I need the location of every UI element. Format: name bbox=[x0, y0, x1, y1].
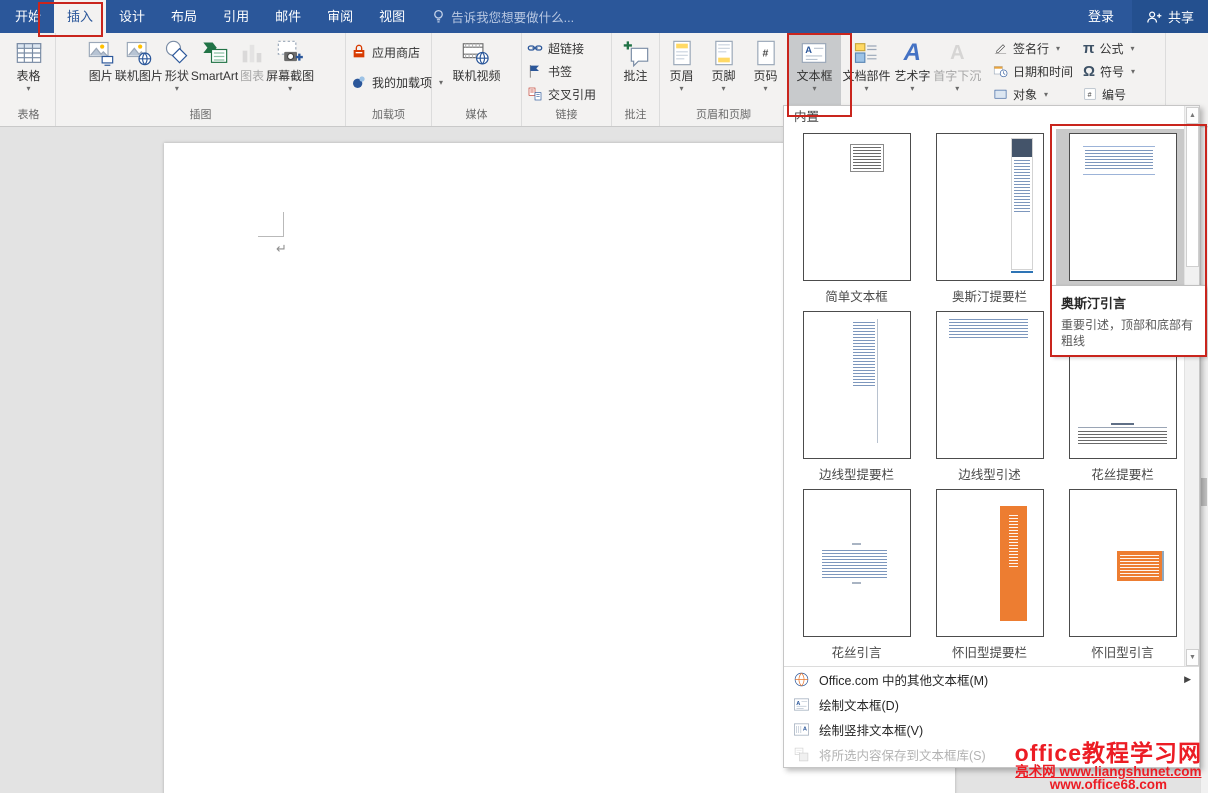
submenu-arrow-icon: ▶ bbox=[1184, 674, 1191, 685]
comment-button[interactable]: 批注 bbox=[622, 33, 650, 105]
screenshot-icon bbox=[276, 37, 304, 69]
hyperlink-button[interactable]: 超链接 bbox=[522, 37, 589, 59]
chevron-down-icon: ▾ bbox=[26, 84, 30, 93]
ribbon-group-addins: 应用商店 我的加载项 ▾ 加载项 bbox=[346, 33, 432, 126]
smartart-icon bbox=[201, 37, 229, 69]
ribbon-tab-bar: 开始 插入 设计 布局 引用 邮件 审阅 视图 告诉我您想要做什么... 登录 … bbox=[0, 0, 1208, 33]
thumbnail-simple-text-box bbox=[803, 133, 911, 281]
gallery-section-header: 内置 bbox=[784, 106, 1199, 129]
table-button[interactable]: 表格 ▾ bbox=[15, 33, 43, 105]
ribbon-group-media: 联机视频 媒体 bbox=[432, 33, 522, 126]
online-pictures-button[interactable]: 联机图片 bbox=[115, 33, 163, 105]
bookmark-button[interactable]: 书签 bbox=[522, 60, 577, 82]
tab-layout[interactable]: 布局 bbox=[158, 0, 210, 33]
date-time-button[interactable]: 日期和时间 bbox=[988, 60, 1078, 82]
cross-reference-button[interactable]: 交叉引用 bbox=[522, 83, 601, 105]
gallery-item-filament-quote[interactable]: 花丝引言 bbox=[790, 485, 923, 663]
table-icon bbox=[15, 37, 43, 69]
bar-chart-icon bbox=[238, 37, 266, 69]
tooltip-description: 重要引述，顶部和底部有粗线 bbox=[1061, 317, 1197, 349]
ribbon-group-header-footer: 页眉 ▾ 页脚 ▾ # 页码 ▾ 页眉和页脚 bbox=[660, 33, 788, 126]
chevron-down-icon: ▾ bbox=[910, 84, 914, 93]
chevron-down-icon: ▾ bbox=[1056, 44, 1060, 53]
gallery-item-sideline-quote[interactable]: 边线型引述 bbox=[923, 307, 1056, 485]
quick-parts-icon bbox=[852, 37, 880, 69]
scroll-down-icon[interactable]: ▼ bbox=[1186, 649, 1199, 666]
chevron-down-icon: ▾ bbox=[1044, 90, 1048, 99]
equation-button[interactable]: π 公式 ▾ bbox=[1078, 37, 1140, 59]
symbol-button[interactable]: Ω 符号 ▾ bbox=[1078, 60, 1140, 82]
drop-cap-icon: A bbox=[950, 42, 964, 64]
document-scrollbar-thumb[interactable] bbox=[1201, 478, 1207, 506]
page-number-icon: # bbox=[754, 37, 778, 69]
person-plus-icon bbox=[1146, 9, 1162, 25]
gallery-item-retrospect-quote[interactable]: 怀旧型引言 bbox=[1056, 485, 1189, 663]
word-window: 开始 插入 设计 布局 引用 邮件 审阅 视图 告诉我您想要做什么... 登录 … bbox=[0, 0, 1208, 793]
header-icon bbox=[670, 37, 694, 69]
tab-view[interactable]: 视图 bbox=[366, 0, 418, 33]
chevron-down-icon: ▾ bbox=[175, 84, 179, 93]
group-label-header-footer: 页眉和页脚 bbox=[660, 107, 787, 125]
text-box-button[interactable]: A 文本框 ▾ bbox=[788, 33, 841, 105]
chevron-down-icon: ▾ bbox=[812, 84, 816, 93]
watermark: office教程学习网 亮术网 www.liangshunet.com www.… bbox=[1015, 742, 1202, 792]
chevron-down-icon: ▾ bbox=[721, 84, 725, 93]
menu-item-more-text-boxes[interactable]: Office.com 中的其他文本框(M) ▶ bbox=[784, 667, 1199, 692]
group-label-media: 媒体 bbox=[432, 107, 521, 125]
office-com-globe-icon bbox=[792, 671, 810, 689]
margin-crop-mark bbox=[258, 236, 284, 237]
group-label-addins: 加载项 bbox=[346, 107, 431, 125]
chevron-down-icon: ▾ bbox=[679, 84, 683, 93]
signature-line-button[interactable]: 签名行 ▾ bbox=[988, 37, 1065, 59]
object-icon bbox=[993, 87, 1008, 102]
thumbnail-austin-sidebar bbox=[936, 133, 1044, 281]
group-label-illustrations: 插图 bbox=[56, 107, 345, 125]
ribbon-group-table: 表格 ▾ 表格 bbox=[2, 33, 56, 126]
tab-mailings[interactable]: 邮件 bbox=[262, 0, 314, 33]
omega-icon: Ω bbox=[1083, 63, 1095, 80]
watermark-url-2: www.office68.com bbox=[1015, 778, 1202, 792]
drop-cap-button: A 首字下沉 ▾ bbox=[933, 33, 982, 105]
shapes-icon bbox=[163, 37, 191, 69]
comment-icon bbox=[622, 37, 650, 69]
gallery-item-retrospect-sidebar[interactable]: 怀旧型提要栏 bbox=[923, 485, 1056, 663]
svg-text:#: # bbox=[762, 48, 768, 60]
pi-icon: π bbox=[1083, 40, 1094, 57]
screenshot-button[interactable]: 屏幕截图 ▾ bbox=[266, 33, 314, 105]
group-label-links: 链接 bbox=[522, 107, 611, 125]
number-box-icon: # bbox=[1083, 87, 1097, 101]
store-icon bbox=[351, 44, 367, 60]
smartart-button[interactable]: SmartArt bbox=[191, 33, 238, 105]
menu-item-draw-vertical-text-box[interactable]: A 绘制竖排文本框(V) bbox=[784, 717, 1199, 742]
tab-home[interactable]: 开始 bbox=[2, 0, 54, 33]
footer-button[interactable]: 页脚 ▾ bbox=[703, 33, 745, 105]
gallery-scrollbar[interactable]: ▲ ▼ bbox=[1184, 106, 1199, 667]
page-number-button[interactable]: # 页码 ▾ bbox=[745, 33, 787, 105]
tab-review[interactable]: 审阅 bbox=[314, 0, 366, 33]
scroll-up-icon[interactable]: ▲ bbox=[1186, 107, 1199, 124]
flag-icon bbox=[527, 63, 543, 79]
draw-vertical-text-box-icon: A bbox=[792, 721, 810, 739]
gallery-tooltip: 奥斯汀引言 重要引述，顶部和底部有粗线 bbox=[1051, 285, 1207, 356]
group-label-comments: 批注 bbox=[612, 107, 659, 125]
paragraph-mark: ↵ bbox=[276, 241, 287, 257]
lightbulb-icon bbox=[432, 9, 445, 24]
draw-text-box-icon: A bbox=[792, 696, 810, 714]
tab-design[interactable]: 设计 bbox=[106, 0, 158, 33]
numbering-button[interactable]: # 编号 bbox=[1078, 83, 1131, 105]
online-video-button[interactable]: 联机视频 bbox=[452, 33, 500, 105]
chart-button: 图表 bbox=[238, 33, 266, 105]
pictures-button[interactable]: 图片 bbox=[87, 33, 115, 105]
gallery-item-sideline-sidebar[interactable]: 边线型提要栏 bbox=[790, 307, 923, 485]
svg-text:A: A bbox=[806, 45, 813, 55]
chevron-down-icon: ▾ bbox=[763, 84, 767, 93]
object-button[interactable]: 对象 ▾ bbox=[988, 83, 1053, 105]
gallery-item-austin-quote[interactable]: 奥斯汀引言 bbox=[1056, 129, 1189, 307]
footer-icon bbox=[712, 37, 736, 69]
text-box-gallery-dropdown: 内置 简单文本框 奥斯汀提要栏 奥斯汀引言 bbox=[783, 105, 1200, 768]
ribbon-group-illustrations: 图片 联机图片 形状 ▾ bbox=[56, 33, 346, 126]
menu-item-draw-text-box[interactable]: A 绘制文本框(D) bbox=[784, 692, 1199, 717]
margin-crop-mark bbox=[283, 212, 284, 236]
thumbnail-austin-quote bbox=[1069, 133, 1177, 281]
text-box-gallery: 简单文本框 奥斯汀提要栏 奥斯汀引言 bbox=[790, 129, 1189, 663]
wordart-button[interactable]: A 艺术字 ▾ bbox=[892, 33, 933, 105]
quick-parts-button[interactable]: 文档部件 ▾ bbox=[841, 33, 892, 105]
addin-icon bbox=[351, 74, 367, 90]
document-scrollbar[interactable] bbox=[1200, 128, 1208, 793]
thumbnail-retrospect-sidebar bbox=[936, 489, 1044, 637]
tab-references[interactable]: 引用 bbox=[210, 0, 262, 33]
pen-icon bbox=[993, 41, 1008, 56]
chevron-down-icon: ▾ bbox=[1131, 44, 1135, 53]
cross-reference-icon bbox=[527, 86, 543, 102]
hyperlink-icon bbox=[527, 40, 543, 56]
group-label-table: 表格 bbox=[2, 107, 55, 125]
watermark-site-name: office教程学习网 bbox=[1015, 742, 1202, 765]
header-button[interactable]: 页眉 ▾ bbox=[661, 33, 703, 105]
svg-text:#: # bbox=[1088, 92, 1092, 99]
ribbon-group-comments: 批注 批注 bbox=[612, 33, 660, 126]
thumbnail-sideline-sidebar bbox=[803, 311, 911, 459]
gallery-item-simple-text-box[interactable]: 简单文本框 bbox=[790, 129, 923, 307]
tooltip-title: 奥斯汀引言 bbox=[1061, 293, 1197, 312]
gallery-scrollbar-thumb[interactable] bbox=[1186, 125, 1199, 267]
gallery-item-austin-sidebar[interactable]: 奥斯汀提要栏 bbox=[923, 129, 1056, 307]
chevron-down-icon: ▾ bbox=[955, 84, 959, 93]
online-picture-icon bbox=[125, 37, 153, 69]
ribbon-group-links: 超链接 书签 交叉引用 链接 bbox=[522, 33, 612, 126]
picture-icon bbox=[87, 37, 115, 69]
thumbnail-retrospect-quote bbox=[1069, 489, 1177, 637]
share-button[interactable]: 共享 bbox=[1132, 0, 1208, 33]
video-icon bbox=[461, 37, 491, 69]
tell-me-search[interactable]: 告诉我您想要做什么... bbox=[432, 0, 574, 33]
chevron-down-icon: ▾ bbox=[864, 84, 868, 93]
save-to-gallery-icon bbox=[792, 746, 810, 764]
search-placeholder: 告诉我您想要做什么... bbox=[451, 7, 574, 26]
chevron-down-icon: ▾ bbox=[288, 84, 292, 93]
thumbnail-filament-quote bbox=[803, 489, 911, 637]
svg-text:A: A bbox=[802, 727, 806, 733]
wordart-icon: A bbox=[904, 41, 921, 65]
store-button[interactable]: 应用商店 bbox=[346, 41, 425, 63]
tab-insert[interactable]: 插入 bbox=[54, 0, 106, 33]
date-time-icon bbox=[993, 64, 1008, 79]
thumbnail-sideline-quote bbox=[936, 311, 1044, 459]
shapes-button[interactable]: 形状 ▾ bbox=[163, 33, 191, 105]
chevron-down-icon: ▾ bbox=[1131, 67, 1135, 76]
text-box-icon: A bbox=[800, 37, 828, 69]
sign-in-button[interactable]: 登录 bbox=[1070, 0, 1132, 33]
